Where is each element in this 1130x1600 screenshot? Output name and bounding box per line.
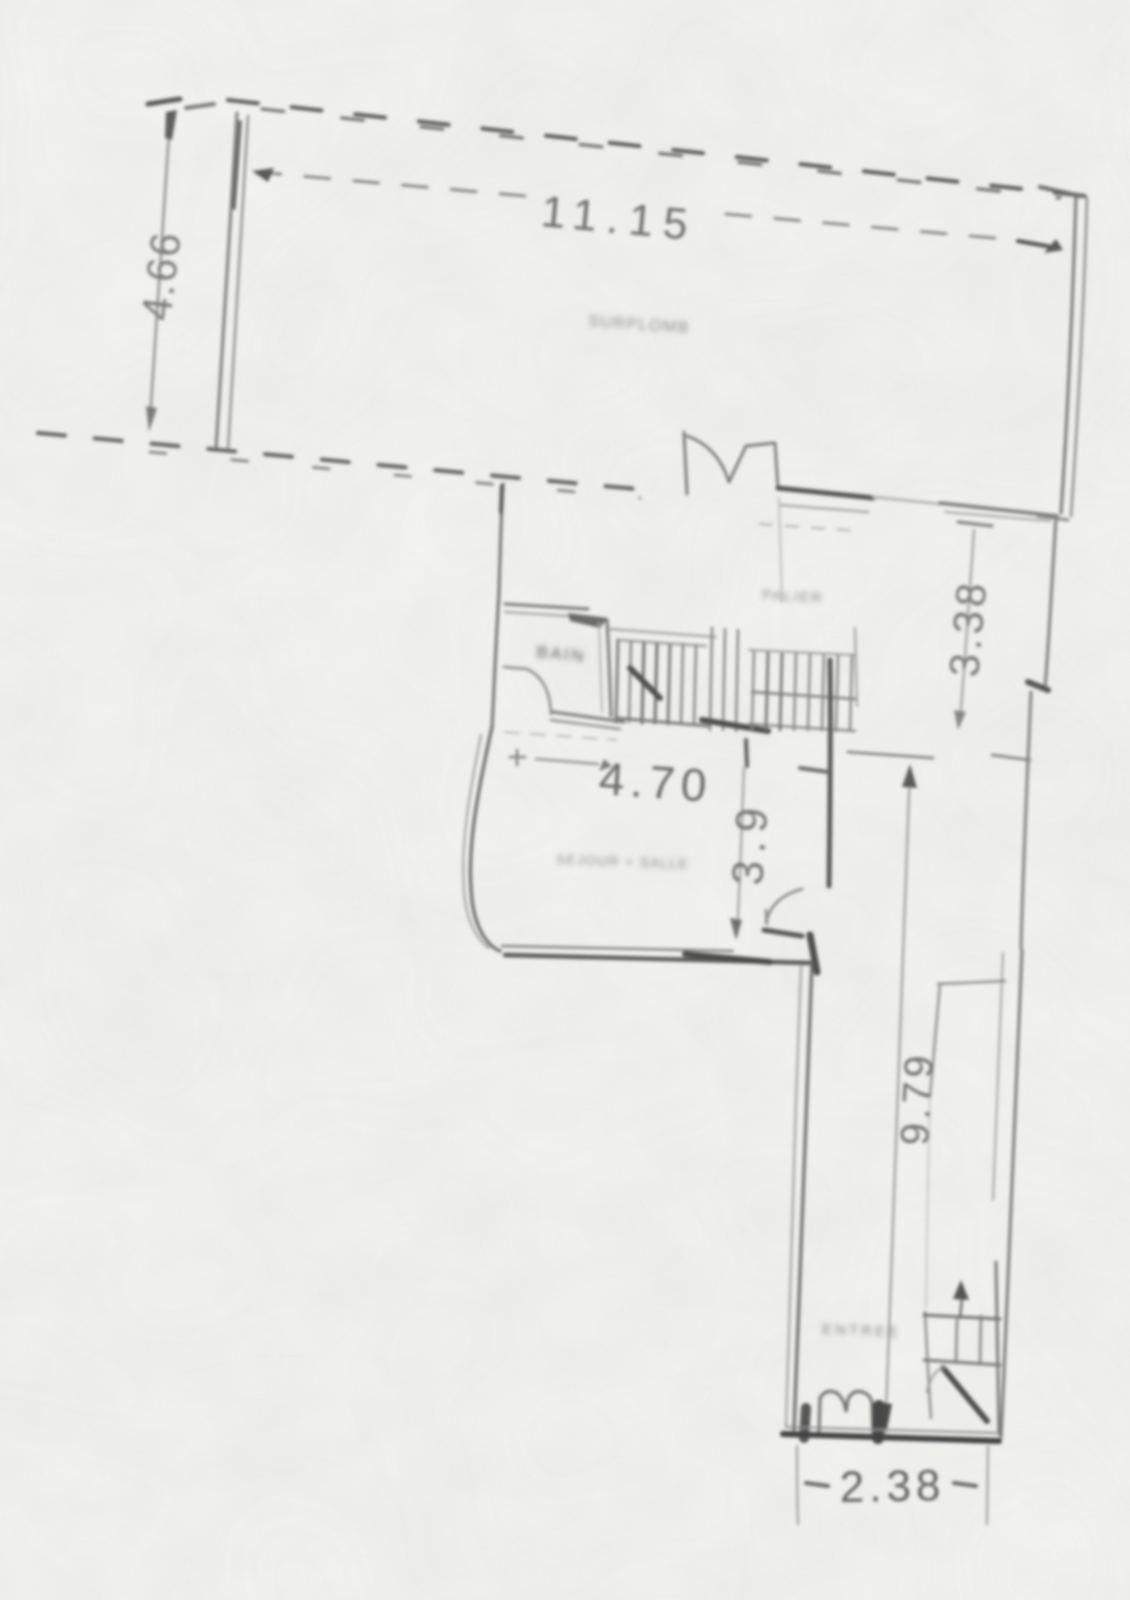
svg-text:3.9: 3.9: [723, 798, 778, 886]
svg-text:2.38: 2.38: [839, 1461, 945, 1512]
svg-text:3.38: 3.38: [940, 577, 995, 678]
svg-text:ENTREE: ENTREE: [822, 1321, 901, 1341]
svg-text:4.70: 4.70: [597, 752, 714, 812]
svg-text:PALIER: PALIER: [762, 587, 824, 607]
svg-text:9.79: 9.79: [893, 1050, 942, 1146]
